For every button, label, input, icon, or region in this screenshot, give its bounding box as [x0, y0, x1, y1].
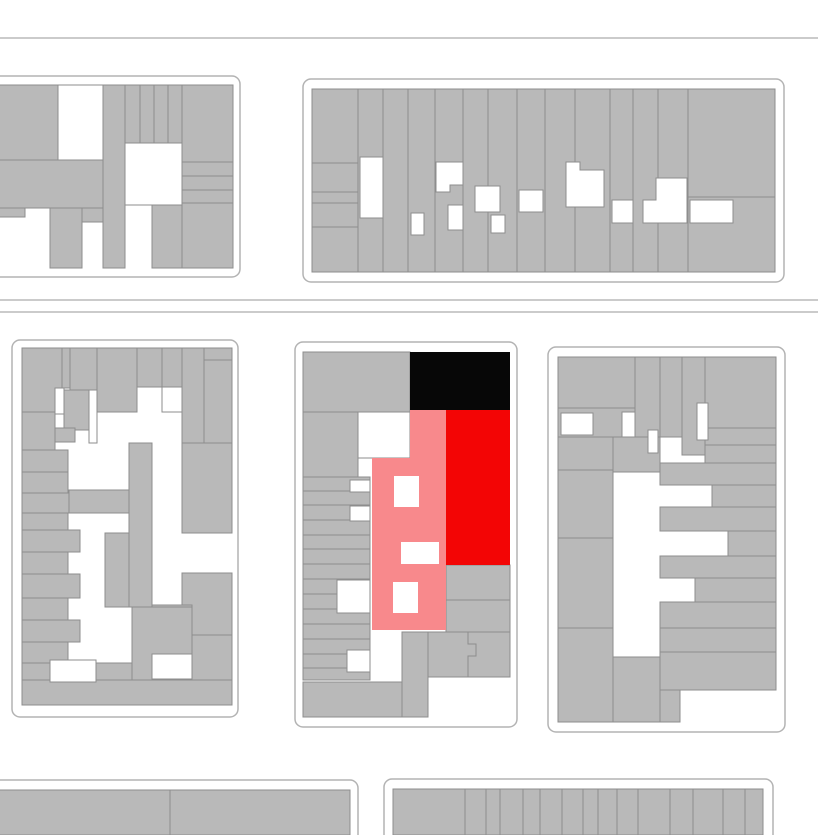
parcel — [705, 445, 776, 463]
block-mid-right — [548, 347, 785, 732]
parcel — [129, 443, 152, 607]
parcel — [55, 428, 75, 442]
parcel — [670, 789, 693, 835]
courtyard-void — [350, 506, 370, 521]
parcel — [558, 538, 613, 628]
courtyard-void — [648, 430, 658, 453]
courtyard-void — [411, 213, 424, 235]
parcel — [408, 89, 435, 272]
courtyard-void — [697, 403, 708, 440]
courtyard-void — [475, 186, 500, 212]
parcel — [558, 470, 613, 538]
parcel — [383, 89, 408, 272]
parcel — [182, 190, 233, 203]
parcel — [712, 485, 776, 507]
parcel — [517, 89, 545, 272]
courtyard-void — [561, 413, 593, 435]
parcel — [558, 357, 635, 408]
parcel — [0, 85, 58, 160]
parcel — [152, 205, 182, 268]
parcel — [204, 348, 232, 443]
parcel — [660, 556, 776, 578]
parcel — [312, 89, 358, 163]
courtyard-void — [162, 387, 182, 412]
parcel — [70, 348, 97, 390]
parcel — [137, 348, 162, 387]
parcel — [170, 790, 350, 835]
building-footprint-black — [410, 352, 510, 410]
parcel — [610, 89, 633, 272]
courtyard-void — [612, 200, 633, 223]
parcel — [540, 789, 562, 835]
parcel — [303, 535, 370, 549]
parcel — [312, 192, 358, 203]
parcel — [638, 789, 670, 835]
block-top-right — [303, 79, 784, 282]
parcel — [705, 428, 776, 445]
parcel — [22, 574, 80, 598]
parcel — [446, 565, 510, 600]
parcel — [500, 789, 523, 835]
block-center-highlight — [295, 342, 517, 727]
parcel — [598, 789, 617, 835]
parcel — [182, 443, 232, 533]
parcel — [0, 790, 170, 835]
parcel — [0, 208, 25, 217]
map-canvas — [0, 0, 818, 835]
parcel — [465, 789, 486, 835]
parcel — [97, 348, 137, 412]
courtyard-void — [448, 205, 463, 230]
courtyard-void — [350, 480, 370, 492]
courtyard-void — [394, 476, 419, 507]
parcel — [393, 789, 465, 835]
parcel — [303, 564, 370, 579]
courtyard-void — [125, 143, 182, 205]
block-top-left — [0, 76, 240, 277]
courtyard-void — [347, 650, 370, 672]
block-mid-left — [12, 340, 238, 717]
courtyard-void — [690, 200, 733, 223]
courtyard-void — [622, 412, 635, 437]
parcel — [182, 162, 233, 176]
parcel — [204, 348, 232, 360]
parcel — [62, 348, 70, 388]
parcel — [486, 789, 500, 835]
courtyard-void — [519, 190, 543, 212]
parcel — [64, 390, 89, 430]
parcel — [488, 89, 517, 272]
parcel — [695, 578, 776, 602]
parcel — [182, 176, 233, 190]
parcel — [182, 85, 233, 162]
parcel — [22, 513, 68, 530]
parcel — [463, 89, 488, 272]
courtyard-void — [401, 542, 439, 564]
parcel — [303, 682, 402, 717]
courtyard-void — [491, 215, 505, 233]
parcel — [523, 789, 540, 835]
parcel — [660, 463, 776, 485]
courtyard-void — [393, 582, 418, 613]
parcel — [633, 89, 658, 272]
parcel — [745, 789, 763, 835]
parcel — [22, 680, 232, 705]
urban-figure-ground-map — [0, 0, 818, 835]
parcel — [22, 530, 80, 552]
parcel — [103, 85, 125, 268]
parcel — [182, 348, 204, 443]
parcel — [303, 520, 370, 535]
parcel — [402, 632, 428, 717]
parcel — [660, 628, 776, 652]
parcel — [22, 472, 68, 493]
parcel — [303, 549, 370, 564]
parcel — [660, 602, 776, 628]
parcel — [562, 789, 583, 835]
parcel — [22, 598, 68, 620]
parcel — [723, 789, 745, 835]
parcel — [22, 552, 68, 574]
block-bottom-right — [384, 779, 773, 835]
parcel — [583, 789, 598, 835]
courtyard-void — [337, 580, 370, 613]
parcel — [617, 789, 638, 835]
parcel — [635, 357, 660, 437]
parcel — [693, 789, 723, 835]
parcel — [660, 652, 776, 690]
courtyard-void — [58, 85, 103, 160]
courtyard-void — [50, 660, 96, 682]
courtyard-void — [360, 157, 383, 218]
parcel — [728, 531, 776, 556]
parcel — [428, 632, 510, 677]
parcel — [192, 635, 232, 680]
parcel — [303, 624, 370, 639]
parcel — [125, 85, 140, 143]
parcel — [688, 89, 775, 197]
parcel — [660, 690, 680, 722]
courtyard-void — [358, 412, 410, 458]
street-line-mid-lower — [0, 311, 818, 313]
parcel — [558, 437, 613, 470]
parcel — [22, 620, 80, 642]
parcel — [660, 507, 776, 531]
parcel — [312, 203, 358, 227]
parcel — [303, 412, 358, 477]
parcel — [162, 348, 182, 387]
courtyard-void — [89, 390, 97, 443]
parcel — [303, 352, 410, 412]
parcel — [50, 208, 82, 268]
parcel — [446, 600, 510, 632]
street-line-mid-upper — [0, 299, 818, 301]
parcel — [105, 533, 129, 607]
parcel — [182, 203, 233, 268]
parcel — [660, 357, 682, 437]
parcel — [22, 450, 68, 472]
building-footprint-red — [446, 410, 510, 565]
parcel — [168, 85, 182, 143]
parcel — [303, 491, 370, 505]
courtyard-void — [152, 654, 192, 679]
parcel — [705, 357, 776, 428]
parcel — [312, 227, 358, 272]
parcel — [312, 163, 358, 192]
parcel — [613, 657, 660, 722]
street-line-top — [0, 37, 818, 39]
parcel — [558, 628, 613, 722]
parcel — [69, 490, 129, 513]
courtyard-void — [55, 388, 64, 414]
block-bottom-left — [0, 780, 358, 835]
parcel — [22, 412, 55, 450]
parcel — [82, 208, 103, 222]
